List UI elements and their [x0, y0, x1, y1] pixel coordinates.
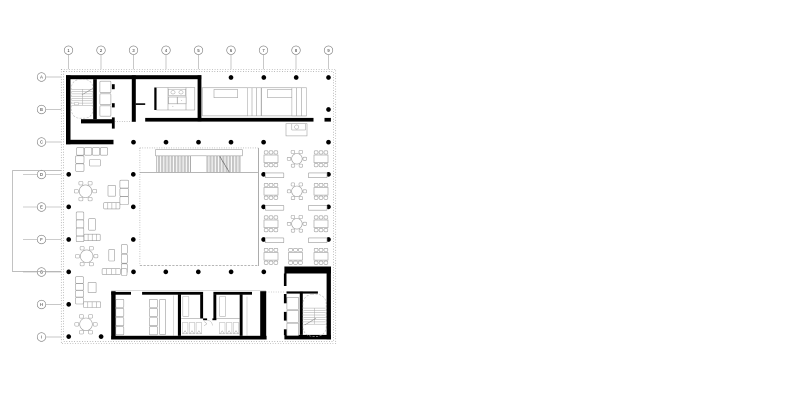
svg-text:D: D	[40, 172, 43, 177]
svg-text:B: B	[40, 107, 43, 112]
svg-text:A: A	[40, 75, 43, 80]
svg-text:G: G	[40, 270, 43, 275]
svg-text:H: H	[40, 302, 43, 307]
svg-text:E: E	[40, 205, 43, 210]
svg-text:I: I	[41, 335, 42, 340]
svg-text:C: C	[40, 140, 43, 145]
